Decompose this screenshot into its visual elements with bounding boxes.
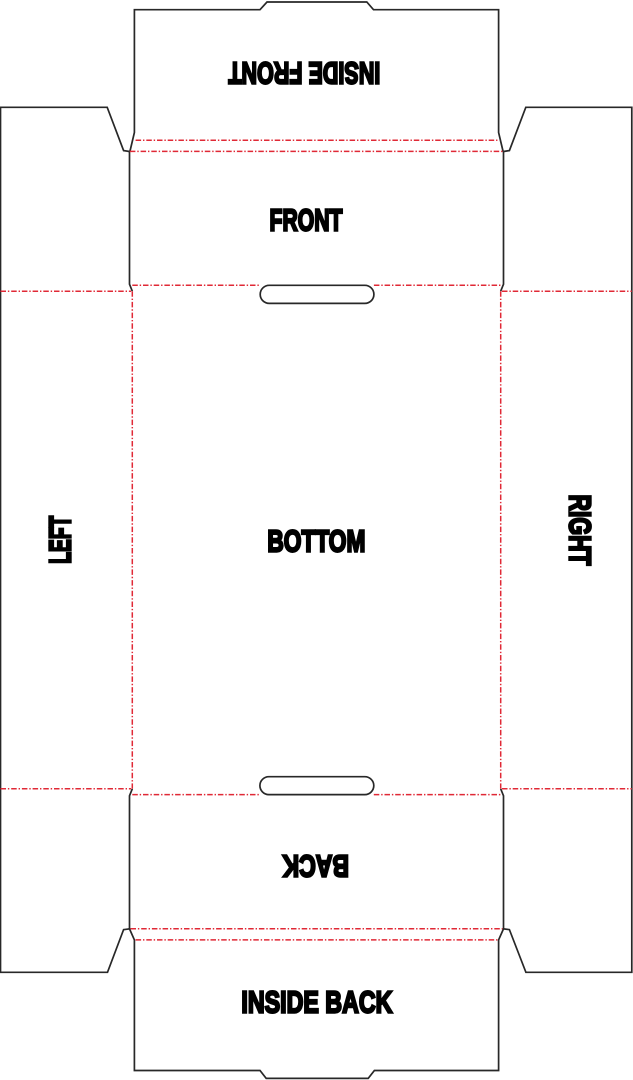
svg-text:BACK: BACK bbox=[282, 849, 349, 884]
svg-text:LEFT: LEFT bbox=[43, 516, 78, 564]
svg-text:INSIDE FRONT: INSIDE FRONT bbox=[228, 55, 380, 90]
svg-text:FRONT: FRONT bbox=[270, 202, 343, 237]
svg-text:BOTTOM: BOTTOM bbox=[267, 524, 365, 559]
svg-text:INSIDE BACK: INSIDE BACK bbox=[241, 984, 392, 1019]
svg-text:RIGHT: RIGHT bbox=[563, 495, 598, 566]
